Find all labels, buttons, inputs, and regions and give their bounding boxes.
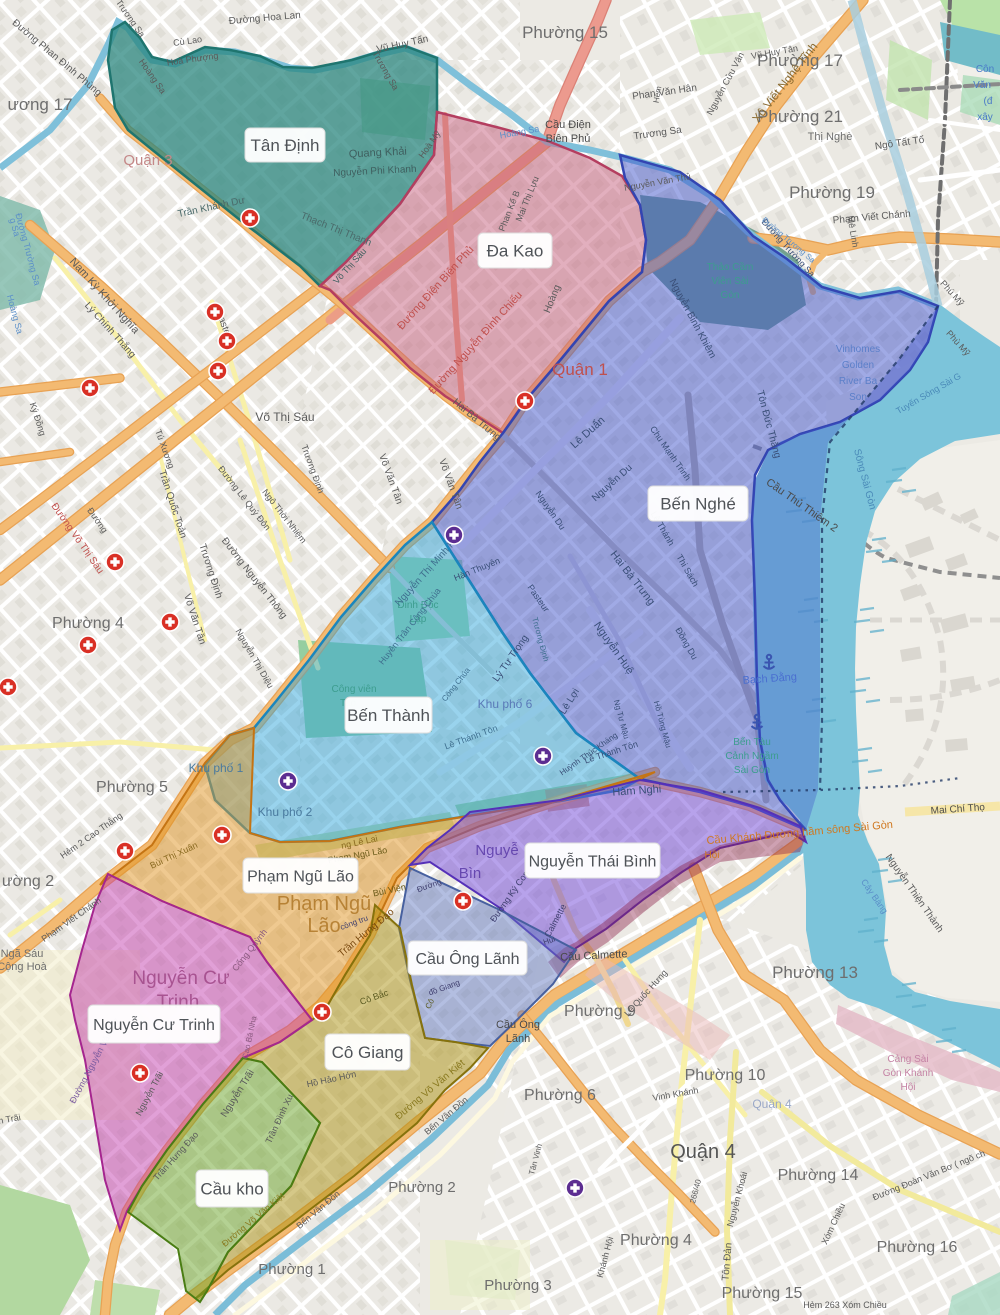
svg-text:Phường 15: Phường 15 (722, 1285, 803, 1302)
svg-text:Gòn Khánh: Gòn Khánh (883, 1068, 934, 1079)
svg-text:Cầu Ông: Cầu Ông (496, 1018, 540, 1031)
svg-text:Quận 3: Quận 3 (123, 152, 172, 169)
svg-text:Phường 2: Phường 2 (388, 1179, 455, 1196)
svg-text:Cô Giang: Cô Giang (332, 1043, 404, 1062)
svg-text:Khu phố 1: Khu phố 1 (189, 761, 244, 775)
svg-text:Bến Nghé: Bến Nghé (660, 495, 736, 514)
svg-text:Phường 6: Phường 6 (524, 1087, 596, 1104)
svg-text:Quận 4: Quận 4 (752, 1097, 792, 1111)
svg-text:Bìn: Bìn (459, 865, 482, 882)
svg-text:Phường 19: Phường 19 (789, 183, 875, 202)
svg-text:Phường 14: Phường 14 (778, 1167, 859, 1184)
svg-text:ường 2: ường 2 (2, 873, 54, 890)
svg-text:Văn: Văn (973, 80, 991, 91)
svg-text:Thị Nghè: Thị Nghè (808, 131, 853, 143)
svg-text:Biên Phủ: Biên Phủ (546, 133, 591, 145)
svg-text:Quận 1: Quận 1 (552, 360, 608, 379)
svg-text:Nguyễn Cư Trinh: Nguyễn Cư Trinh (93, 1015, 215, 1034)
svg-text:Tân Định: Tân Định (251, 136, 320, 155)
svg-text:Phường 13: Phường 13 (772, 963, 858, 982)
svg-text:ương 17: ương 17 (7, 95, 72, 114)
svg-text:Bến Thành: Bến Thành (347, 706, 430, 725)
svg-text:Cầu Ông Lãnh: Cầu Ông Lãnh (415, 949, 519, 968)
svg-text:Son: Son (849, 392, 867, 403)
svg-text:Lão: Lão (307, 915, 340, 937)
svg-text:Cầu Điện: Cầu Điện (545, 119, 591, 131)
svg-text:Phường 4: Phường 4 (620, 1232, 692, 1249)
svg-text:Bến Tàu: Bến Tàu (733, 736, 771, 748)
svg-text:Khu phố 6: Khu phố 6 (478, 697, 533, 711)
svg-text:Hội: Hội (704, 850, 719, 861)
svg-text:Cảng Sài: Cảng Sài (887, 1054, 928, 1065)
svg-text:Phường 10: Phường 10 (685, 1067, 766, 1084)
svg-text:River Ba: River Ba (839, 376, 878, 387)
svg-text:Phạm Ngũ Lão: Phạm Ngũ Lão (247, 868, 354, 885)
svg-text:Phường 3: Phường 3 (484, 1277, 551, 1294)
svg-text:Phường 4: Phường 4 (52, 615, 124, 632)
svg-text:Ngã Sáu: Ngã Sáu (1, 948, 44, 960)
svg-text:Cảnh Ngầm: Cảnh Ngầm (725, 750, 778, 762)
svg-text:Quận 4: Quận 4 (670, 1141, 736, 1163)
svg-text:xây: xây (977, 112, 993, 123)
svg-text:Thảo Cầm: Thảo Cầm (707, 261, 754, 273)
svg-text:Phường 5: Phường 5 (96, 779, 168, 796)
svg-text:Phường 1: Phường 1 (258, 1261, 325, 1278)
svg-text:Võ Thị Sáu: Võ Thị Sáu (255, 410, 314, 424)
svg-text:Côn: Côn (976, 64, 994, 75)
svg-text:Gòn: Gòn (721, 290, 740, 301)
svg-text:Cầu kho: Cầu kho (200, 1180, 263, 1199)
svg-text:Khu phố 2: Khu phố 2 (258, 805, 313, 819)
svg-text:(đ: (đ (984, 96, 993, 107)
svg-text:Công viên: Công viên (331, 684, 376, 695)
svg-text:Nguyễn Thái Bình: Nguyễn Thái Bình (529, 851, 657, 870)
svg-text:Cộng Hoà: Cộng Hoà (0, 961, 48, 973)
svg-text:Nguyễ: Nguyễ (475, 842, 518, 859)
svg-text:Viên Sài: Viên Sài (711, 276, 748, 287)
svg-text:Vinhomes: Vinhomes (836, 344, 880, 355)
svg-text:Đa Kao: Đa Kao (487, 242, 544, 261)
svg-text:Phường 16: Phường 16 (877, 1239, 958, 1256)
svg-text:Lãnh: Lãnh (506, 1033, 530, 1045)
svg-text:Golden: Golden (842, 360, 874, 371)
svg-text:Sài Gòn: Sài Gòn (734, 765, 770, 776)
svg-text:Nguyễn Cư: Nguyễn Cư (132, 967, 229, 989)
svg-text:Hẻm 263 Xóm Chiều: Hẻm 263 Xóm Chiều (803, 1300, 887, 1310)
svg-text:Phường 15: Phường 15 (522, 23, 608, 42)
svg-text:Hội: Hội (900, 1082, 915, 1093)
svg-text:Phạm Ngũ: Phạm Ngũ (277, 893, 372, 915)
